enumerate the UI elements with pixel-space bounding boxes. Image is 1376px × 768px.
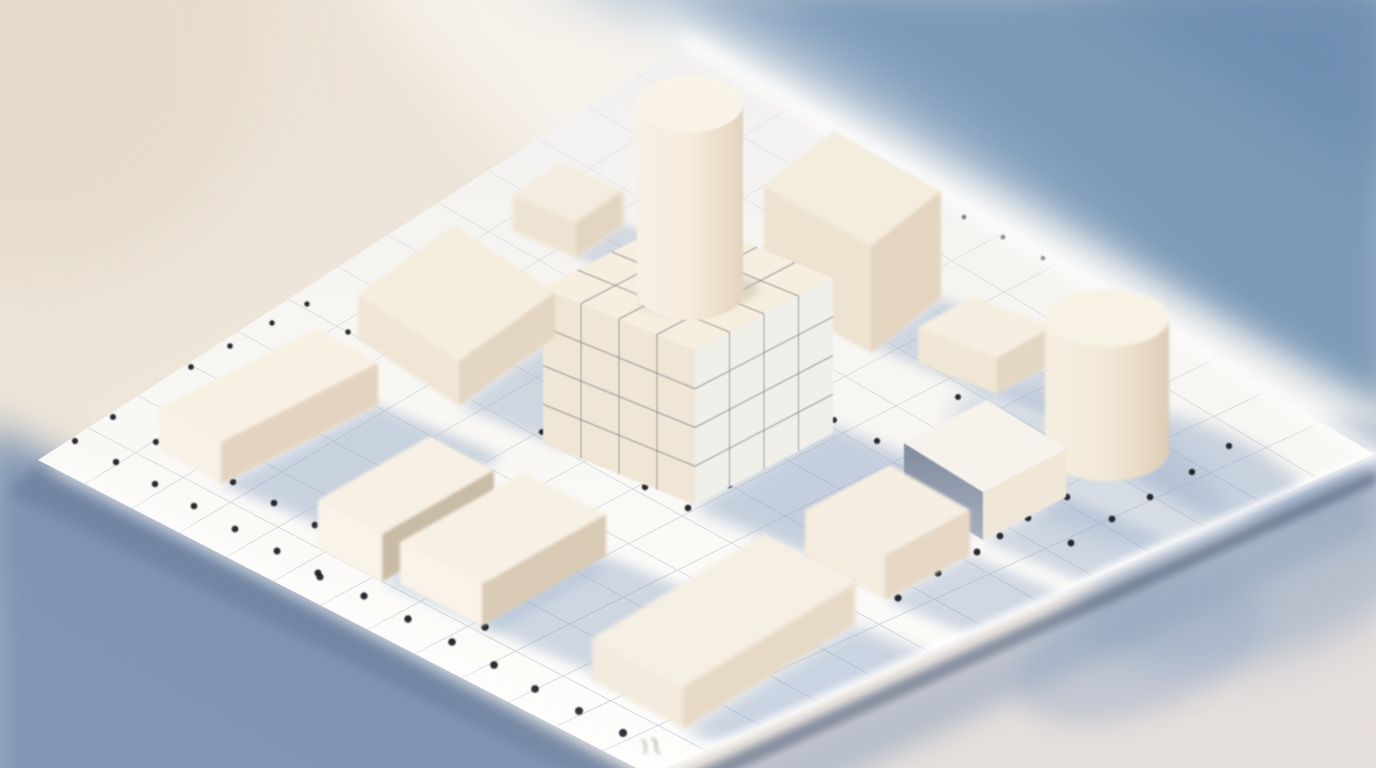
- big-cylinder-body: [637, 104, 743, 320]
- small-cylinder-top: [1045, 289, 1169, 347]
- ink-dot: [360, 592, 367, 599]
- ink-dot: [531, 685, 539, 693]
- ink-dot: [490, 661, 498, 669]
- ink-dot: [232, 526, 239, 533]
- ink-dot: [997, 533, 1004, 540]
- big-cylinder-top: [637, 76, 743, 132]
- scene-canvas: [0, 0, 1376, 768]
- ink-dot: [1068, 540, 1075, 547]
- ink-dot: [894, 594, 901, 601]
- ink-dot: [269, 320, 274, 325]
- scene: [0, 0, 1376, 768]
- ink-dot: [575, 707, 583, 715]
- ink-dot: [874, 438, 880, 444]
- ink-dot: [274, 548, 281, 555]
- ink-dot: [974, 549, 981, 556]
- ink-dot: [1189, 469, 1195, 475]
- ink-dot: [1109, 516, 1116, 523]
- render-root: [0, 0, 1376, 768]
- big-cylinder: [637, 76, 743, 320]
- ink-dot: [312, 522, 319, 529]
- ink-dot: [227, 343, 233, 349]
- ink-dot: [152, 481, 158, 487]
- ink-dot: [191, 503, 198, 510]
- ink-dot: [316, 573, 323, 580]
- ink-dot: [72, 438, 78, 444]
- ink-dot: [685, 505, 692, 512]
- ink-dot: [230, 479, 236, 485]
- ink-dot: [345, 329, 350, 334]
- ink-dot: [1226, 443, 1232, 449]
- ink-dot: [1147, 494, 1154, 501]
- ink-dot: [271, 500, 278, 507]
- ink-dot: [113, 459, 119, 465]
- ink-dot: [153, 439, 159, 445]
- ink-dot: [188, 364, 194, 370]
- ink-dot: [448, 638, 456, 646]
- ink-dot: [619, 729, 627, 737]
- ink-dot: [304, 301, 309, 306]
- ink-dot: [955, 394, 961, 400]
- ink-dot: [404, 615, 411, 622]
- ink-dot: [110, 414, 116, 420]
